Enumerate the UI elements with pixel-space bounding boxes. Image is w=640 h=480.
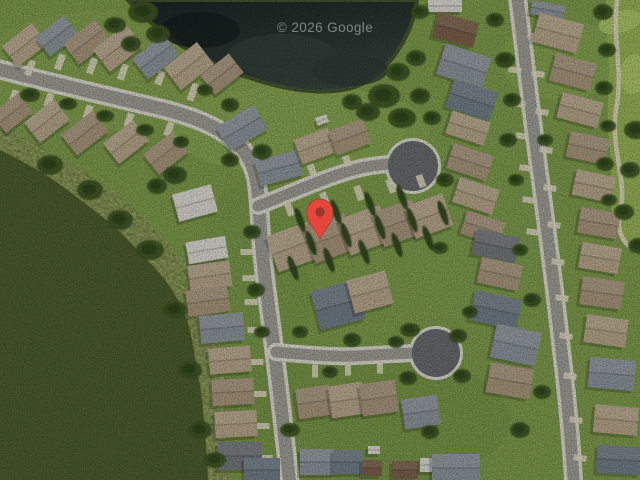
satellite-map-view[interactable]: © 2026 Google [0, 0, 640, 480]
noise-overlay [0, 0, 640, 480]
map-pin-dot [315, 207, 325, 217]
satellite-imagery: © 2026 Google [0, 0, 640, 480]
google-watermark: © 2026 Google [277, 20, 373, 35]
scene-layer [0, 0, 640, 480]
